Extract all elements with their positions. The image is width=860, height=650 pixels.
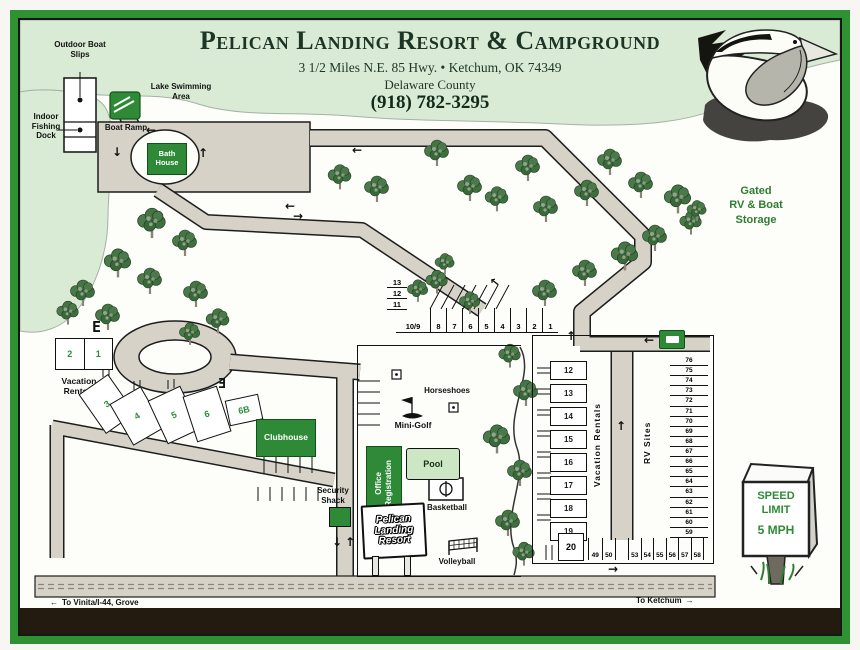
rental-site: 13 xyxy=(550,384,587,403)
resort-address: 3 1/2 Miles N.E. 85 Hwy. • Ketchum, OK 7… xyxy=(40,60,820,76)
boat-ramp-label: Boat Ramp xyxy=(104,123,148,133)
rv-site: 75 xyxy=(670,366,708,376)
rv-site: 7 xyxy=(446,308,462,332)
rv-sites-east-column: 767574737271706968676665646362616059 xyxy=(670,356,708,538)
direction-west: ← To Vinita/I-44, Grove xyxy=(50,598,139,607)
rental-site: 2 xyxy=(56,339,84,369)
mini-golf-label: Mini-Golf xyxy=(390,420,436,430)
rv-site: 73 xyxy=(670,386,708,396)
rv-site: 4 xyxy=(494,308,510,332)
rv-site: 76 xyxy=(670,356,708,366)
rv-storage-icon xyxy=(659,330,685,349)
arrow-left-icon: ← xyxy=(644,334,654,346)
rental-site: 14 xyxy=(550,407,587,426)
rv-sites-49-50: 4950 xyxy=(588,538,616,560)
highway xyxy=(35,576,715,597)
security-shack-building xyxy=(329,507,351,527)
e-marker-mid: Ǝ xyxy=(218,377,226,392)
rv-site: 71 xyxy=(670,407,708,417)
rv-site: 70 xyxy=(670,417,708,427)
gated-storage-line2: RV & Boat xyxy=(706,198,806,212)
rv-site: 49 xyxy=(589,538,602,560)
arrow-down-icon: ↓ xyxy=(112,146,122,158)
rv-site: 64 xyxy=(670,477,708,487)
rv-site: 5 xyxy=(478,308,494,332)
vacation-rentals-east-column: 1213141516171819 xyxy=(550,361,587,541)
rv-sites-stack: 131211 xyxy=(387,277,407,310)
outdoor-boat-slips-label: Outdoor Boat Slips xyxy=(52,40,108,59)
rv-site: 50 xyxy=(602,538,616,560)
speed-line1: SPEED xyxy=(745,490,807,504)
speed-line3: 5 MPH xyxy=(745,523,807,538)
bath-house: Bath House xyxy=(147,143,187,175)
rv-site: 55 xyxy=(653,538,666,560)
indoor-fishing-dock-label: Indoor Fishing Dock xyxy=(24,112,68,141)
arrow-left-icon: ← xyxy=(50,598,58,607)
rv-site: 61 xyxy=(670,508,708,518)
e-marker-west: E xyxy=(92,318,101,336)
rental-site: 1 xyxy=(84,339,113,369)
rental-site: 12 xyxy=(550,361,587,380)
horseshoes-label: Horseshoes xyxy=(418,386,476,396)
rental-site-20: 20 xyxy=(558,533,584,561)
scan-shadow-band xyxy=(20,608,840,634)
arrow-left-icon: ← xyxy=(146,124,156,136)
arrow-up-icon: ↑ xyxy=(198,147,208,159)
arrow-left-icon: ← xyxy=(352,144,362,156)
campground-map: Pelican Landing Resort & Campground 3 1/… xyxy=(0,0,860,650)
rental-site: 18 xyxy=(550,499,587,518)
rv-site: 65 xyxy=(670,467,708,477)
rv-site: 1 xyxy=(542,308,558,332)
arrow-up-icon: ↑ xyxy=(345,536,355,548)
vacation-rentals-east-label: Vacation Rentals xyxy=(592,390,602,500)
direction-west-label: To Vinita/I-44, Grove xyxy=(62,598,139,607)
resort-entrance-sign: Pelican Landing Resort xyxy=(362,498,428,576)
vacation-rental-pair: 21 xyxy=(55,338,113,370)
lake-swimming-area-label: Lake Swimming Area xyxy=(144,82,218,101)
rental-site: 16 xyxy=(550,453,587,472)
arrow-down-icon: ↓ xyxy=(332,536,342,548)
rv-site: 59 xyxy=(670,528,708,538)
rental-site: 15 xyxy=(550,430,587,449)
gated-storage-line3: Storage xyxy=(706,213,806,227)
rv-site: 72 xyxy=(670,396,708,406)
direction-east-label: To Ketchum xyxy=(636,596,682,605)
rv-site: 69 xyxy=(670,427,708,437)
arrow-up-icon: ↑ xyxy=(566,330,576,342)
rv-site: 13 xyxy=(387,277,407,288)
rv-site: 58 xyxy=(691,538,704,560)
arrow-right-icon: → xyxy=(293,210,303,222)
rental-site: 17 xyxy=(550,476,587,495)
gated-storage-label: Gated RV & Boat Storage xyxy=(706,184,806,227)
rv-site: 6 xyxy=(462,308,478,332)
arrow-right-icon: → xyxy=(608,563,618,575)
rv-site: 74 xyxy=(670,376,708,386)
rv-site: 63 xyxy=(670,487,708,497)
speed-line2: LIMIT xyxy=(745,504,807,518)
rv-site: 62 xyxy=(670,498,708,508)
arrow-right-icon: → xyxy=(686,596,694,605)
gated-storage-line1: Gated xyxy=(706,184,806,198)
rv-site: 56 xyxy=(666,538,679,560)
rv-site: 3 xyxy=(510,308,526,332)
rv-site: 53 xyxy=(629,538,641,560)
security-shack-label: Security Shack xyxy=(310,486,356,505)
arrow-up-icon: ↑ xyxy=(616,420,626,432)
resort-title: Pelican Landing Resort & Campground xyxy=(40,26,820,56)
rv-sites-53-58: 535455565758 xyxy=(628,538,704,560)
rv-site: 10/9 xyxy=(396,308,430,332)
clubhouse: Clubhouse xyxy=(256,419,316,457)
rv-sites-label: RV Sites xyxy=(642,413,652,473)
rv-site: 2 xyxy=(526,308,542,332)
rv-site: 54 xyxy=(641,538,654,560)
speed-limit-sign: SPEED LIMIT 5 MPH xyxy=(733,452,823,594)
rv-sites-row: 10/987654321 xyxy=(396,308,558,333)
rv-site: 12 xyxy=(387,288,407,299)
volleyball-label: Volleyball xyxy=(432,557,482,567)
rv-site: 57 xyxy=(678,538,691,560)
rv-site: 8 xyxy=(430,308,446,332)
direction-east: To Ketchum → xyxy=(636,596,694,605)
sign-line3: Resort xyxy=(378,536,410,548)
rv-site: 66 xyxy=(670,457,708,467)
rv-site: 67 xyxy=(670,447,708,457)
pool: Pool xyxy=(406,448,460,480)
rv-site: 60 xyxy=(670,518,708,528)
basketball-label: Basketball xyxy=(422,503,472,513)
rv-site: 68 xyxy=(670,437,708,447)
